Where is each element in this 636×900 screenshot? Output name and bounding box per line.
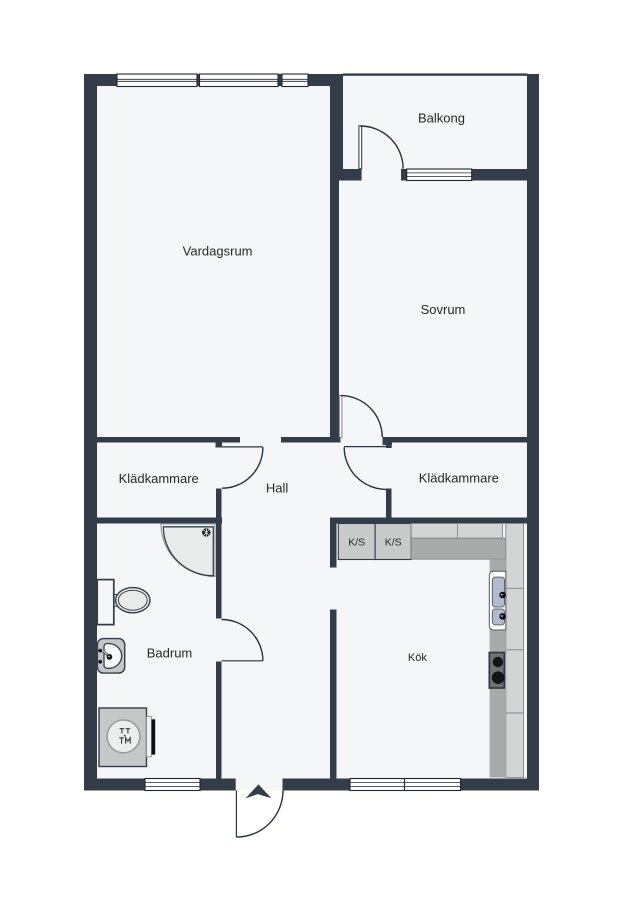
svg-text:Balkong: Balkong <box>418 110 465 125</box>
svg-text:K/S: K/S <box>385 537 402 549</box>
svg-text:Vardagsrum: Vardagsrum <box>183 243 253 258</box>
svg-text:K/S: K/S <box>348 537 365 549</box>
svg-text:Klädkammare: Klädkammare <box>119 471 199 486</box>
svg-text:Badrum: Badrum <box>147 646 193 661</box>
svg-text:Sovrum: Sovrum <box>421 302 466 317</box>
svg-text:Klädkammare: Klädkammare <box>419 470 499 485</box>
svg-text:Kök: Kök <box>408 652 427 664</box>
svg-text:Hall: Hall <box>266 481 289 496</box>
